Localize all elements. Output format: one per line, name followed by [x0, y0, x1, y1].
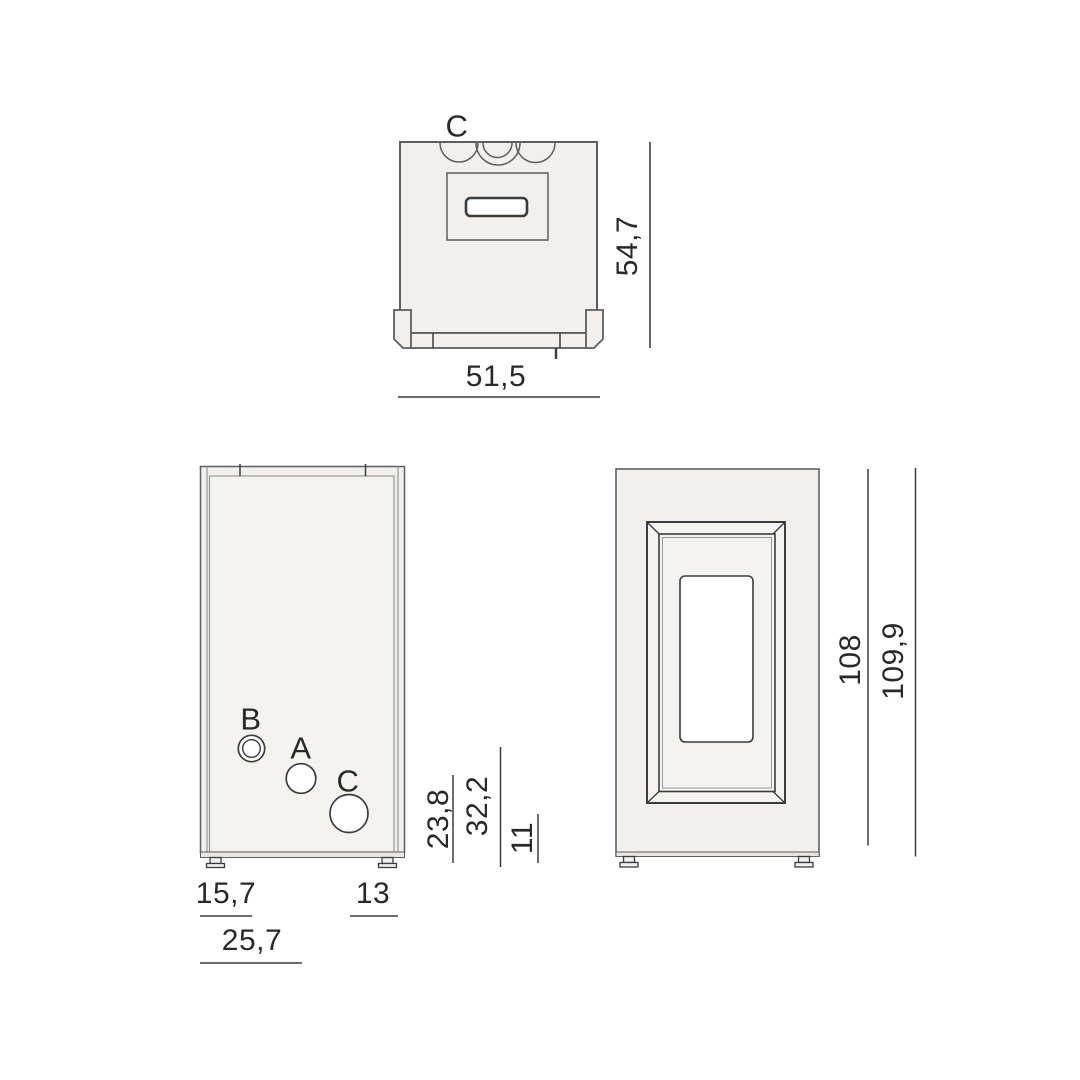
dim-23-8-label: 23,8	[424, 789, 454, 849]
back-view-base-band	[201, 852, 405, 858]
dim-13-label: 13	[356, 879, 390, 909]
port-a-label: A	[290, 733, 311, 764]
back-view-inner-panel	[210, 476, 395, 852]
top-view-connector-label: C	[446, 111, 469, 142]
port-c-label: C	[337, 766, 360, 797]
drawing-linework	[0, 0, 1080, 1080]
back-view-right-foot	[379, 858, 397, 868]
top-view-right-bracket	[586, 310, 603, 348]
top-view-slot	[466, 198, 527, 216]
technical-drawing-sheet: C 51,5 54,7 B A C 23,8 32,2 11 15,7 13 2…	[0, 0, 1080, 1080]
dim-depth-label: 54,7	[613, 216, 643, 276]
dim-25-7-label: 25,7	[222, 926, 282, 956]
front-view-base-band	[616, 852, 819, 857]
dim-32-2-label: 32,2	[463, 776, 493, 836]
front-view	[616, 468, 916, 867]
front-view-right-foot	[795, 857, 813, 868]
port-a-circle	[286, 764, 316, 794]
dim-15-7-label: 15,7	[196, 879, 256, 909]
dim-108-label: 108	[836, 634, 866, 686]
dim-width-label: 51,5	[466, 362, 526, 392]
door-glass	[680, 576, 753, 742]
dim-109-9-label: 109,9	[879, 622, 909, 700]
dim-11-label: 11	[508, 822, 538, 854]
back-view-left-foot	[207, 858, 225, 868]
port-c-circle	[330, 795, 368, 833]
port-b-label: B	[240, 704, 261, 735]
front-view-left-foot	[620, 857, 638, 868]
top-view-left-bracket	[394, 310, 411, 348]
